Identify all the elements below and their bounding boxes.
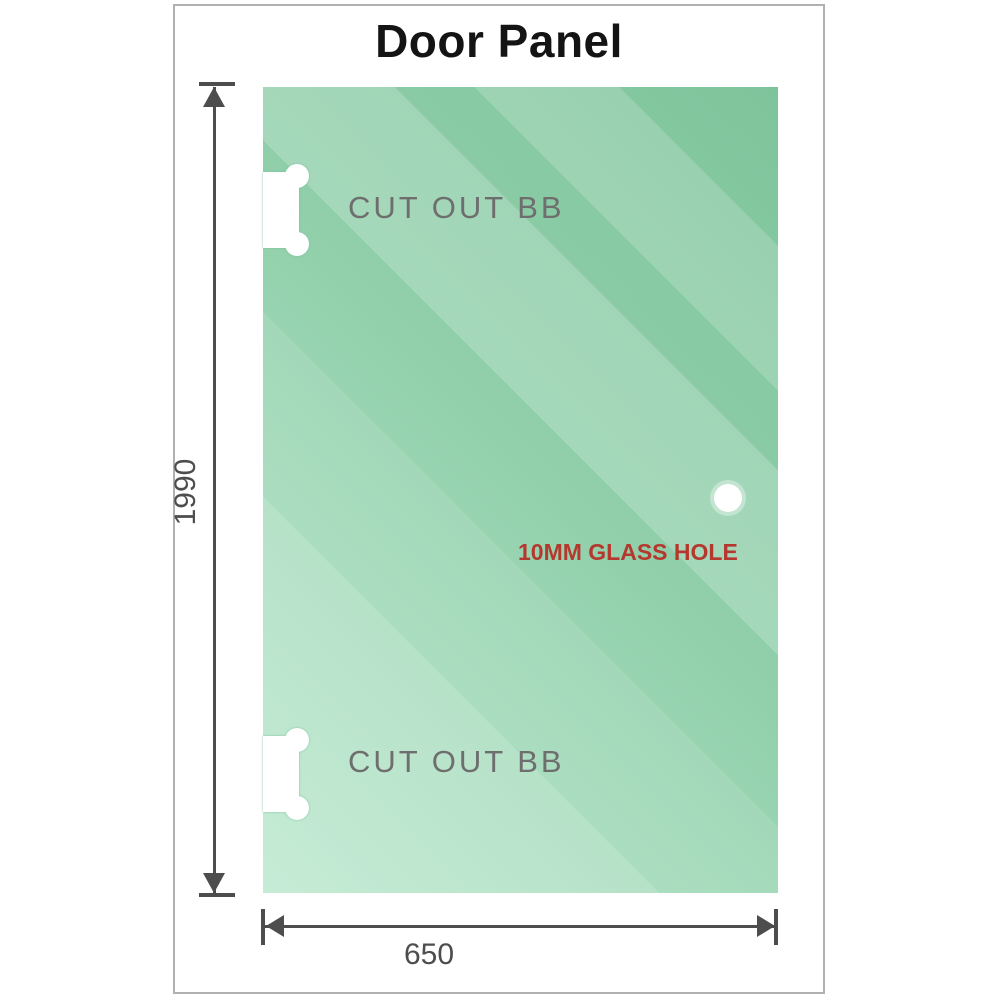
arrowhead-left-icon [266,915,284,937]
hinge-cutout-bottom [263,728,313,820]
page: Door Panel CUT OUT BB CUT OUT BB 10MM GL… [0,0,1000,1000]
hinge-cutout-top [263,164,313,256]
dimension-line-horizontal [265,925,776,928]
door-panel-glass: CUT OUT BB CUT OUT BB 10MM GLASS HOLE [263,87,778,893]
page-title: Door Panel [173,14,825,68]
dimension-cap-bottom [199,893,235,897]
height-dimension-label: 1990 [169,432,203,552]
cutout-label-top: CUT OUT BB [348,190,565,226]
glass-hole [714,484,742,512]
dimension-line-vertical [213,87,216,893]
arrowhead-right-icon [757,915,775,937]
width-dimension-label: 650 [369,938,489,972]
dimension-cap-top [199,82,235,86]
arrowhead-up-icon [203,87,225,107]
cutout-label-bottom: CUT OUT BB [348,744,565,780]
arrowhead-down-icon [203,873,225,893]
glass-hole-label: 10MM GLASS HOLE [518,539,738,566]
